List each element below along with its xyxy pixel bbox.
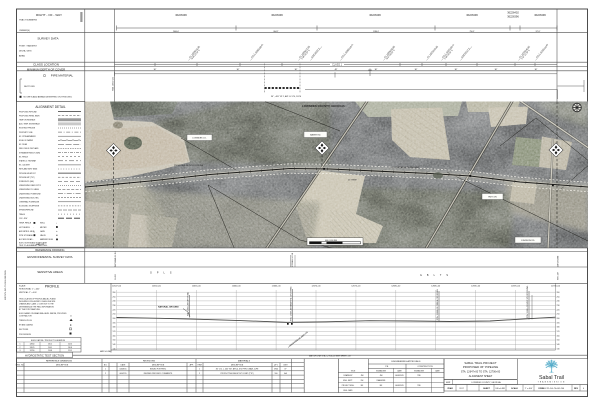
svg-text:36": 36" [455,69,458,71]
svg-text:SCALE:: SCALE: [19,284,26,287]
svg-text:REFERENCE DRAWING: REFERENCE DRAWING [35,248,64,252]
svg-text:POINT / TANGENT: POINT / TANGENT [19,45,38,48]
svg-text:DELTA / DEG: DELTA / DEG [19,50,32,53]
svg-text:HOT BENDS: HOT BENDS [19,227,30,229]
svg-text:DRAWN BY: DRAWN BY [343,374,353,377]
svg-text:12650: 12650 [30,344,35,346]
svg-text:INDICATED FOR A SURVEY CLASS L: INDICATED FOR A SURVEY CLASS LINE SIZE [19,300,56,303]
svg-text:EX. CULVERT: EX. CULVERT [19,165,30,167]
svg-text:STA. 12655+80 DIRT ROAD: STA. 12655+80 DIRT ROAD [187,291,190,316]
svg-text:36": 36" [237,69,240,71]
svg-text:OWNER(S): OWNER(S) [19,30,30,32]
svg-text:MATCH LINE: MATCH LINE [100,350,112,353]
svg-text:ISSUED FOR FERC: ISSUED FOR FERC [150,369,167,371]
svg-text:36226396: 36226396 [507,14,519,18]
svg-text:1: 1 [199,369,200,371]
svg-text:SIGNATURE: SIGNATURE [414,369,425,372]
svg-text:PROFILE: PROFILE [45,285,60,289]
svg-text:P.E.: P.E. [385,366,389,368]
svg-text:SCALE: SCALE [511,387,518,390]
svg-text:210.8: 210.8 [68,347,72,349]
svg-text:VALVE: VALVE [40,234,46,237]
svg-text:150: 150 [557,340,560,342]
svg-text:12695+00: 12695+00 [511,285,521,287]
svg-text:SECTIONS: SECTIONS [19,329,29,331]
svg-text:36": 36" [154,69,157,71]
svg-text:PROJECT ENG.: PROJECT ENG. [342,385,355,387]
svg-text:STA. 12668+40 BAKER RD. CROSS: STA. 12668+40 BAKER RD. CROSSING [290,286,293,321]
svg-text:WETLAND G1-W1: WETLAND G1-W1 [114,251,117,267]
svg-text:STA. 12647+00 TO STA. 12706+00: STA. 12647+00 TO STA. 12706+00 [461,370,501,373]
svg-text:240: 240 [557,301,560,303]
svg-text:UNDERGRND POWERLINE: UNDERGRND POWERLINE [19,193,41,195]
svg-text:220: 220 [113,309,116,311]
svg-text:WELL: WELL [40,223,45,225]
svg-text:EP AND CASING: EP AND CASING [19,324,34,327]
svg-text:EX. STREAM/WATER: EX. STREAM/WATER [19,135,36,138]
svg-text:TEMP. WORKSPACE: TEMP. WORKSPACE [19,119,36,122]
svg-text:36": 36" [415,69,418,71]
svg-text:36": 36" [535,69,538,71]
svg-text:3: 3 [20,350,21,352]
svg-text:PROPOSED PIPELINE: PROPOSED PIPELINE [19,111,38,113]
svg-text:TRENCH PLUG: TRENCH PLUG [19,320,32,322]
svg-text:36226396: 36226396 [175,13,187,17]
svg-text:DATE: DATE [121,363,126,366]
svg-text:NATURAL GROUND: NATURAL GROUND [158,306,179,309]
svg-text:36226402: 36226402 [507,11,519,15]
svg-text:TRACT NUMBERS: TRACT NUMBERS [19,19,37,22]
svg-text:EX. FENCE: EX. FENCE [19,156,29,158]
svg-text:36", .465" W.T., API 5L X70, 2: 36", .465" W.T., API 5L X70, 2LPE [271,95,302,98]
svg-text:RIGHT - OF - WAY: RIGHT - OF - WAY [36,13,62,17]
svg-text:THIS LOCATION OF PROFILE AND A: THIS LOCATION OF PROFILE AND ALL PLANS [19,298,56,301]
svg-text:STATE/CO. HIGHWAY: STATE/CO. HIGHWAY [19,160,37,163]
svg-text:250: 250 [557,296,560,298]
svg-text:PROPERTY LINE: PROPERTY LINE [19,132,33,134]
svg-text:36226396: 36226396 [271,13,283,17]
svg-text:1: 1 [20,344,21,346]
svg-text:230: 230 [557,305,560,307]
svg-text:5900: 5900 [274,369,278,371]
svg-text:BAKER RD.: BAKER RD. [310,134,321,137]
svg-text:36226396: 36226396 [534,13,546,17]
svg-text:12680+00: 12680+00 [391,285,401,287]
svg-text:REFERENCE DRAWINGS: REFERENCE DRAWINGS [46,360,73,363]
svg-text:04/08/2015: 04/08/2015 [395,385,404,387]
svg-text:MATERIALS: MATERIALS [238,360,251,363]
svg-text:SECTIONS: SECTIONS [24,86,35,88]
svg-text:04/08/2015: 04/08/2015 [395,375,404,377]
svg-text:CHANGE AND CLASS 1. CONTOUR TO: CHANGE AND CLASS 1. CONTOUR TO THE [19,303,54,306]
svg-text:TRANSMISSION: TRANSMISSION [538,381,566,384]
svg-text:130: 130 [113,348,116,350]
svg-text:GATE: GATE [40,230,46,233]
svg-text:DETERMINED AT THE FIELD INFORM: DETERMINED AT THE FIELD INFORMATION [19,305,55,308]
svg-text:04/08/15: 04/08/15 [120,369,127,371]
svg-text:12650+00: 12650+00 [152,285,162,287]
svg-text:ENG. DEPT.: ENG. DEPT. [343,380,353,382]
svg-text:G B L T S: G B L T S [420,274,450,277]
svg-text:APP.: APP. [190,363,194,366]
svg-text:STREAM G1-S4: STREAM G1-S4 [291,253,294,267]
svg-text:230: 230 [113,305,116,307]
svg-text:LOWNDES COUNTY, GEORGIA: LOWNDES COUNTY, GEORGIA [302,104,346,108]
svg-text:260: 260 [113,292,116,294]
svg-text:25' TEMP.: 25' TEMP. [348,180,357,182]
svg-text:36": 36" [295,69,298,71]
svg-text:NAD 83: NAD 83 [36,243,44,246]
svg-text:SENSITIVE AREAS: SENSITIVE AREAS [37,270,63,274]
svg-text:DESCRIPTION: DESCRIPTION [231,364,244,366]
svg-text:ELEV. DATUM / PRODUCT ELEVATIO: ELEV. DATUM / PRODUCT ELEVATION [31,339,66,342]
svg-text:NO.: NO. [104,364,108,366]
svg-text:12675+00: 12675+00 [351,285,361,287]
svg-text:36": 36" [375,69,378,71]
svg-text:12670: 12670 [30,347,35,349]
svg-text:UNDERGRND ELECTRIC: UNDERGRND ELECTRIC [19,197,40,199]
svg-text:2: 2 [105,373,106,375]
svg-text:PIPELINE MP (TYP): PIPELINE MP (TYP) [19,177,35,179]
svg-text:1: 1 [105,369,106,371]
svg-text:2: 2 [199,373,200,375]
svg-text:PROPOSED PERM. ESMT.: PROPOSED PERM. ESMT. [19,115,40,117]
svg-text:170: 170 [557,331,560,333]
svg-text:ENG. DATE: ENG. DATE [344,389,354,392]
svg-text:UNDERGRND P/L CABLE: UNDERGRND P/L CABLE [19,188,40,191]
svg-text:371.1': 371.1' [535,31,541,33]
svg-text:12690+00: 12690+00 [471,285,481,287]
svg-text:ELEV. BASED ON MEAN SEA LEVEL: ELEV. BASED ON MEAN SEA LEVEL DATUM, PRO… [19,312,67,315]
svg-text:REVISED PER FERC COMMENTS: REVISED PER FERC COMMENTS [144,373,173,375]
svg-text:12660+00: 12660+00 [232,285,242,287]
svg-text:UNDERGRND FIBER OPTIC: UNDERGRND FIBER OPTIC [19,185,42,187]
svg-text:SIGNATURE: SIGNATURE [376,369,387,372]
svg-text:HYDROSTATIC TEST SECTION: HYDROSTATIC TEST SECTION [25,353,64,357]
svg-text:CSX - R/W: CSX - R/W [19,218,28,220]
svg-text:246 of 488: 246 of 488 [495,388,505,390]
svg-text:SHEET: SHEET [483,388,490,390]
svg-text:ITEM: ITEM [197,364,202,366]
svg-text:200: 200 [113,318,116,320]
svg-text:CLASS 1: CLASS 1 [332,64,343,67]
svg-text:36226396: 36226396 [466,13,478,17]
svg-text:590: 590 [275,373,278,375]
svg-text:RHASKINS: RHASKINS [377,379,387,382]
svg-text:SURVEY DATA: SURVEY DATA [37,37,59,41]
svg-text:HWY 376: HWY 376 [488,197,497,199]
svg-text:DESCRIPTION: DESCRIPTION [56,364,69,366]
svg-text:1" = 400': 1" = 400' [525,388,533,390]
svg-text:PIPELINE MILEPOST: PIPELINE MILEPOST [19,173,36,175]
svg-text:804.2': 804.2' [273,31,279,33]
svg-text:REVISIONS: REVISIONS [143,361,155,363]
svg-text:EXISTING PIPELINE: EXISTING PIPELINE [19,128,36,130]
svg-text:G P L S: G P L S [150,272,174,275]
svg-text:260: 260 [557,292,560,294]
svg-text:12647+00: 12647+00 [112,285,122,287]
svg-text:211.5: 211.5 [68,350,72,352]
svg-text:FIELD DELIN. WETLAND: FIELD DELIN. WETLAND [19,147,39,150]
svg-text:CONSTRUCTION: CONSTRUCTION [417,366,433,368]
svg-text:12655+00: 12655+00 [192,285,202,287]
svg-text:VERTICAL: 1" = 400': VERTICAL: 1" = 400' [19,291,37,294]
svg-text:PIPE MATERIAL: PIPE MATERIAL [51,74,74,78]
svg-text:NO WETLAND AREAS IDENTIFIED ON: NO WETLAND AREAS IDENTIFIED ON THIS DWG. [24,96,73,99]
svg-text:200: 200 [557,318,560,320]
svg-text:36226396: 36226396 [369,13,381,17]
svg-text:130: 130 [557,348,560,350]
svg-text:ALIGNMENT SHEET: ALIGNMENT SHEET [469,375,493,378]
svg-text:AREA: AREA [19,55,25,58]
svg-text:50' PERMANENT EASEMENT: 50' PERMANENT EASEMENT [392,166,420,169]
svg-text:190: 190 [113,322,116,324]
svg-text:12665+00: 12665+00 [272,285,282,287]
svg-text:STA. 12684+10 CREEK CROSSING: STA. 12684+10 CREEK CROSSING [436,289,439,320]
svg-text:214.8: 214.8 [48,350,52,352]
svg-text:+: + [56,223,57,225]
svg-text:MATCH LINE: MATCH LINE [557,255,560,267]
svg-text:PIPE STORAGE: PIPE STORAGE [19,234,33,237]
svg-text:214.1: 214.1 [48,347,52,349]
svg-text:2: 2 [20,347,21,349]
svg-text:SHT. 247: SHT. 247 [558,272,560,280]
svg-text:ALIGNMENT DETAIL: ALIGNMENT DETAIL [35,105,66,109]
svg-text:12685+00: 12685+00 [431,285,441,287]
svg-text:SPRING/PIPELINE: SPRING/PIPELINE [19,210,34,212]
svg-text:OVERHEAD POWERLINE: OVERHEAD POWERLINE [19,201,40,204]
svg-text:ACCESS ROAD: ACCESS ROAD [19,238,33,241]
svg-text:HORIZONTAL: 1" = 400': HORIZONTAL: 1" = 400' [19,288,40,291]
svg-text:CLASS LOCATION: CLASS LOCATION [33,63,59,67]
svg-text:FOREIGN P/L (ME): FOREIGN P/L (ME) [19,181,34,183]
svg-text:12670+00: 12670+00 [312,285,322,287]
svg-text:MATCH LINE STA. 12706+00 SEE: MATCH LINE STA. 12706+00 SEE SHEET 247 [309,355,352,358]
svg-text:REV: REV [574,388,579,390]
svg-text:140: 140 [557,344,560,346]
svg-text:2640.0': 2640.0' [173,31,180,33]
svg-text:1807-PL-DG-70-001-246.DGN: 1807-PL-DG-70-001-246.DGN [5,270,7,300]
svg-text:LOC: LOC [446,382,451,384]
svg-text:ENGINEERING APPROVALS: ENGINEERING APPROVALS [392,360,421,363]
svg-text:190: 190 [557,322,560,324]
svg-text:170: 170 [113,331,116,333]
svg-text:G1-W1: G1-W1 [115,274,117,280]
svg-text:METER: METER [40,227,47,229]
svg-text:36" O.D. x .465" W.T. API-5L X: 36" O.D. x .465" W.T. API-5L X70 PIPE, D… [216,368,259,371]
svg-text:STA. 12647+00: STA. 12647+00 [112,76,115,91]
svg-text:250: 250 [113,296,116,298]
svg-text:EDGE OF WATER: EDGE OF WATER [19,139,34,142]
svg-text:STA. 12695+25 HWY 376 CROSSIN: STA. 12695+25 HWY 376 CROSSING [526,285,529,318]
svg-text:Sabal Trail: Sabal Trail [539,375,564,381]
svg-text:140: 140 [113,344,116,346]
svg-text:750.3': 750.3' [469,31,475,33]
svg-text:1180.6': 1180.6' [373,31,380,33]
svg-text:160: 160 [557,335,560,337]
svg-text:48": 48" [335,69,338,71]
svg-text:EX. ROAD: EX. ROAD [19,143,28,146]
svg-text:TRAILS: TRAILS [19,213,26,216]
svg-text:ENVIRONMENTAL SURVEY DATA: ENVIRONMENTAL SURVEY DATA [27,255,72,259]
svg-text:CONTRACTOR: CONTRACTOR [19,314,32,317]
svg-text:180: 180 [557,327,560,329]
svg-text:DWG. NO.: DWG. NO. [16,364,25,366]
svg-text:220: 220 [557,309,560,311]
svg-text:STREAM/WTRBODY (NWI): STREAM/WTRBODY (NWI) [19,151,40,154]
svg-text:BY THE POINT SAMPLING.: BY THE POINT SAMPLING. [19,308,41,311]
svg-text:WETLAND BDRY (NWI): WETLAND BDRY (NWI) [19,168,38,171]
svg-text:180: 180 [113,327,116,329]
svg-text:PROPOSED 36" PIPELINE: PROPOSED 36" PIPELINE [463,365,498,369]
svg-text:YEAR: YEAR [447,387,453,390]
svg-text:06/02/15: 06/02/15 [120,373,127,375]
svg-text:ECONOMIC TELEPHONE: ECONOMIC TELEPHONE [19,206,40,208]
svg-text:210: 210 [557,314,560,316]
svg-text:1807-PL-DG-70-001-246: 1807-PL-DG-70-001-246 [542,388,565,390]
svg-text:12706+00: 12706+00 [551,285,561,287]
svg-text:DESCRIPTION: DESCRIPTION [152,364,165,366]
svg-text:215.2: 215.2 [48,344,52,346]
svg-text:36": 36" [495,69,498,71]
svg-text:ADD. TEMP. WORKSPACE: ADD. TEMP. WORKSPACE [19,123,41,126]
svg-text:QTY.: QTY. [274,364,278,366]
svg-text:PROPOSED 36-INCH PIPELINE: PROPOSED 36-INCH PIPELINE [174,165,204,167]
svg-text:212.0: 212.0 [68,344,72,346]
svg-text:210: 210 [113,314,116,316]
svg-text:150: 150 [113,340,116,342]
svg-text:LOWNDES COUNTY, GEORGIA: LOWNDES COUNTY, GEORGIA [471,381,501,384]
svg-text:TEMP. FENCE: TEMP. FENCE [19,223,32,225]
svg-text:MINIMUM DEPTH OF COVER: MINIMUM DEPTH OF COVER [27,67,65,71]
svg-text:160: 160 [113,335,116,337]
svg-text:PROCESSION: PROCESSION [19,334,32,336]
svg-text:LOWNDES CO.: LOWNDES CO. [192,138,207,140]
svg-text:240: 240 [113,301,116,303]
svg-text:MARKER SIGN: MARKER SIGN [40,238,54,241]
svg-text:12700: 12700 [30,350,35,352]
svg-text:JOHNSON RD.: JOHNSON RD. [521,240,535,242]
svg-text:PROTECTIVE FBE EPOXY JOINT (TY: PROTECTIVE FBE EPOXY JOINT (TYP) [221,373,254,375]
